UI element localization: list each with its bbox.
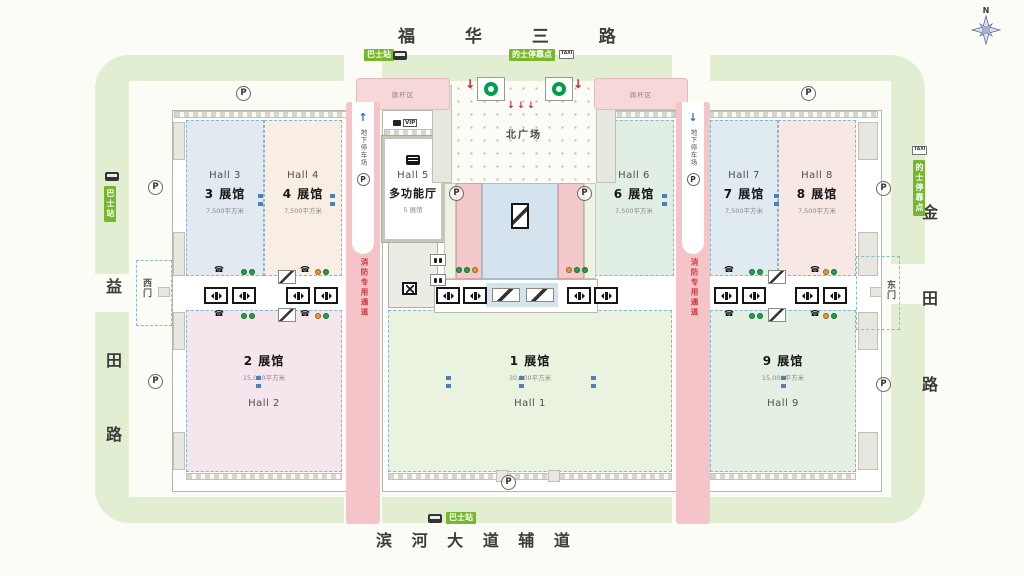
- stairs-icon: [768, 270, 786, 284]
- elevator-icon: [204, 287, 228, 304]
- stairs-icon: [768, 308, 786, 322]
- down-arrow-icon: ↓: [573, 78, 583, 90]
- metro-entrance: [477, 77, 505, 101]
- hall-5-num: 5 展馆: [382, 204, 444, 214]
- hall-1-name-cn: 1 展馆: [388, 352, 672, 369]
- fire-lane-label: 消防专用通道: [356, 258, 370, 318]
- hall-7-name-en: Hall 7: [710, 170, 778, 181]
- stair-core: [858, 122, 878, 160]
- parking-icon: P: [687, 173, 700, 186]
- loading-dock: [388, 473, 672, 480]
- hall-6-name-en: Hall 6: [594, 170, 674, 181]
- loading-dock: [186, 473, 342, 480]
- hall-8-name-en: Hall 8: [778, 170, 856, 181]
- facility-dot: [464, 267, 470, 273]
- restroom-icon: [430, 254, 446, 266]
- hall-9-name-en: Hall 9: [710, 398, 856, 409]
- bus-icon: [428, 514, 442, 523]
- telephone-icon: ☎: [810, 310, 820, 318]
- street-name-south: 滨 河 大 道 辅 道: [376, 527, 577, 551]
- compass-rose-icon: [971, 15, 1001, 45]
- service-point-marker: [330, 194, 335, 206]
- underground-parking-ramp-west: ↑ 地下停车场 P: [352, 102, 374, 254]
- facility-dot: [249, 313, 255, 319]
- bus-stop-label: 巴士站: [364, 49, 394, 61]
- parking-icon: P: [449, 186, 464, 201]
- parking-icon: P: [501, 475, 516, 490]
- up-arrow-icon: ↑: [358, 112, 367, 123]
- down-arrow-icon: ↓: [465, 78, 475, 90]
- taxi-icon: TAXI: [559, 50, 574, 59]
- service-point-marker: [256, 376, 261, 388]
- hall-1-name-en: Hall 1: [388, 398, 672, 409]
- facility-dot: [456, 267, 462, 273]
- hall-2: [186, 310, 342, 472]
- street-name-north: 福 华 三 路: [398, 22, 638, 47]
- elevator-icon: [714, 287, 738, 304]
- telephone-icon: ☎: [214, 266, 224, 274]
- facility-dot: [241, 269, 247, 275]
- hall-9: [710, 310, 856, 472]
- stairs-icon: [278, 308, 296, 322]
- hall-3-label: Hall 3 3 展馆 7,500平方米: [186, 170, 264, 215]
- hall-1-label: 1 展馆 30,000平方米: [388, 348, 672, 382]
- hall-6-label: Hall 6 6 展馆 7,500平方米: [594, 170, 674, 215]
- flag-area-label: 旗杆区: [630, 89, 653, 99]
- taxi-stop-label: 的士停靠点: [509, 49, 555, 61]
- bus-stop-label: 巴士站: [104, 186, 116, 222]
- stair-core: [173, 432, 185, 470]
- hall-5-name-cn: 多功能厅: [382, 185, 444, 201]
- hall-2-label-en: Hall 2: [186, 398, 342, 409]
- atrium-glass-hall: [482, 183, 558, 279]
- service-point-marker: [591, 376, 596, 388]
- hall-1-label-en: Hall 1: [388, 398, 672, 409]
- hall-8-name-cn: 8 展馆: [778, 185, 856, 202]
- hall-4-area: 7,500平方米: [264, 205, 342, 215]
- hall-5-name-en: Hall 5: [382, 170, 444, 181]
- elevator-icon: [286, 287, 310, 304]
- hall-7-name-cn: 7 展馆: [710, 185, 778, 202]
- street-name-west: 益田路: [100, 278, 124, 500]
- flag-area-east: 旗杆区: [594, 78, 688, 110]
- hall-1: [388, 310, 672, 472]
- elevator-icon: [463, 287, 487, 304]
- hall-4-label: Hall 4 4 展馆 7,500平方米: [264, 170, 342, 215]
- fire-lane-label: 消防专用通道: [686, 258, 700, 318]
- facility-dot: [831, 269, 837, 275]
- telephone-icon: ☎: [300, 310, 310, 318]
- elevator-icon: [742, 287, 766, 304]
- parking-icon: P: [148, 374, 163, 389]
- escalator-icon: [492, 288, 520, 302]
- west-gate-label: 西门: [140, 278, 153, 298]
- facility-dot: [566, 267, 572, 273]
- restroom-icon: [430, 274, 446, 286]
- parking-icon: P: [876, 377, 891, 392]
- facility-dot: [823, 313, 829, 319]
- down-arrow-icon: ↓: [688, 112, 697, 123]
- parking-icon: P: [876, 181, 891, 196]
- hall-7-label: Hall 7 7 展馆 7,500平方米: [710, 170, 778, 215]
- facility-dot: [823, 269, 829, 275]
- theater-seats-icon: [406, 155, 420, 165]
- elevator-icon: [795, 287, 819, 304]
- stair-core: [173, 312, 185, 350]
- elevator-icon: [823, 287, 847, 304]
- stair-core: [173, 122, 185, 160]
- hall-2-name-cn: 2 展馆: [186, 352, 342, 369]
- bus-icon: [105, 172, 119, 181]
- facility-dot: [315, 269, 321, 275]
- telephone-icon: ☎: [300, 266, 310, 274]
- service-point-marker: [446, 376, 451, 388]
- hall-8-area: 7,500平方米: [778, 205, 856, 215]
- elevator-icon: [436, 287, 460, 304]
- underground-parking-label: 地下停车场: [688, 129, 698, 167]
- facility-dot: [757, 313, 763, 319]
- parking-icon: P: [357, 173, 370, 186]
- telephone-icon: ☎: [214, 310, 224, 318]
- service-point-marker: [258, 194, 263, 206]
- down-arrow-icon: ↓: [517, 102, 525, 111]
- telephone-icon: ☎: [810, 266, 820, 274]
- facility-dot: [323, 313, 329, 319]
- facility-dot: [749, 313, 755, 319]
- east-gate-booth: [870, 287, 882, 297]
- parking-icon: P: [577, 186, 592, 201]
- underground-parking-ramp-east: ↓ 地下停车场 P: [682, 102, 704, 254]
- hall-8-label: Hall 8 8 展馆 7,500平方米: [778, 170, 856, 215]
- facility-dot: [757, 269, 763, 275]
- down-arrow-icon: ↓: [527, 102, 535, 111]
- west-gate-booth: [158, 287, 170, 297]
- elevator-icon: [594, 287, 618, 304]
- parking-icon: P: [801, 86, 816, 101]
- street-name-east: 金田路: [916, 204, 940, 462]
- parking-icon: P: [236, 86, 251, 101]
- vip-label: VIP: [403, 119, 417, 127]
- hall-4-name-en: Hall 4: [264, 170, 342, 181]
- hall-5-label: Hall 5 多功能厅 5 展馆: [382, 170, 444, 214]
- facility-dot: [582, 267, 588, 273]
- bus-icon: [393, 51, 407, 60]
- stair-core: [858, 432, 878, 470]
- telephone-icon: ☎: [724, 310, 734, 318]
- facility-dot: [323, 269, 329, 275]
- metro-logo-icon: [484, 82, 498, 96]
- hall-1-area: 30,000平方米: [388, 372, 672, 382]
- elevator-icon: [314, 287, 338, 304]
- facility-dot: [831, 313, 837, 319]
- hall-7-area: 7,500平方米: [710, 205, 778, 215]
- roof-structure: [708, 111, 878, 118]
- down-arrow-icon: ↓: [507, 102, 515, 111]
- hall-6-area: 7,500平方米: [594, 205, 674, 215]
- facility-dot: [249, 269, 255, 275]
- elevator-icon: [232, 287, 256, 304]
- no-entry-icon: [402, 282, 417, 295]
- hall-2-name-en: Hall 2: [186, 398, 342, 409]
- underground-parking-label: 地下停车场: [358, 129, 368, 167]
- facility-dot: [574, 267, 580, 273]
- parking-icon: P: [148, 180, 163, 195]
- south-entrance-structure: [548, 470, 560, 482]
- venue-map: 福 华 三 路 滨 河 大 道 辅 道 益田路 金田路 Hall 3 3 展馆 …: [0, 0, 1024, 576]
- service-point-marker: [781, 376, 786, 388]
- metro-entrance: [545, 77, 573, 101]
- escalator-icon: [526, 288, 554, 302]
- bus-stop-label: 巴士站: [446, 512, 476, 524]
- facility-dot: [315, 313, 321, 319]
- compass-north-label: N: [966, 6, 1006, 15]
- service-point-marker: [519, 376, 524, 388]
- taxi-stop-label: 的士停靠点: [913, 160, 925, 216]
- elevator-icon: [567, 287, 591, 304]
- hall-2-label: 2 展馆 15,000平方米: [186, 348, 342, 382]
- hall-2-area: 15,000平方米: [186, 372, 342, 382]
- hall-9-label-en: Hall 9: [710, 398, 856, 409]
- telephone-icon: ☎: [724, 266, 734, 274]
- facility-dot: [472, 267, 478, 273]
- service-point-marker: [662, 194, 667, 206]
- hall-3-area: 7,500平方米: [186, 205, 264, 215]
- east-gate-label: 东门: [884, 280, 897, 300]
- taxi-icon: TAXI: [912, 146, 927, 155]
- north-plaza-label: 北广场: [452, 126, 596, 141]
- hall-9-name-cn: 9 展馆: [710, 352, 856, 369]
- vip-figures-icon: [393, 120, 401, 126]
- compass: N: [966, 6, 1006, 49]
- stairs-icon: [278, 270, 296, 284]
- vip-entrance: VIP: [393, 119, 417, 127]
- roof-structure: [174, 111, 350, 118]
- hall-3-name-en: Hall 3: [186, 170, 264, 181]
- escalator-icon: [511, 203, 529, 229]
- flag-area-label: 旗杆区: [392, 89, 415, 99]
- facility-dot: [749, 269, 755, 275]
- stair-core: [173, 232, 185, 276]
- facility-dot: [241, 313, 247, 319]
- metro-logo-icon: [552, 82, 566, 96]
- service-point-marker: [774, 194, 779, 206]
- hall-3-name-cn: 3 展馆: [186, 185, 264, 202]
- loading-dock: [710, 473, 856, 480]
